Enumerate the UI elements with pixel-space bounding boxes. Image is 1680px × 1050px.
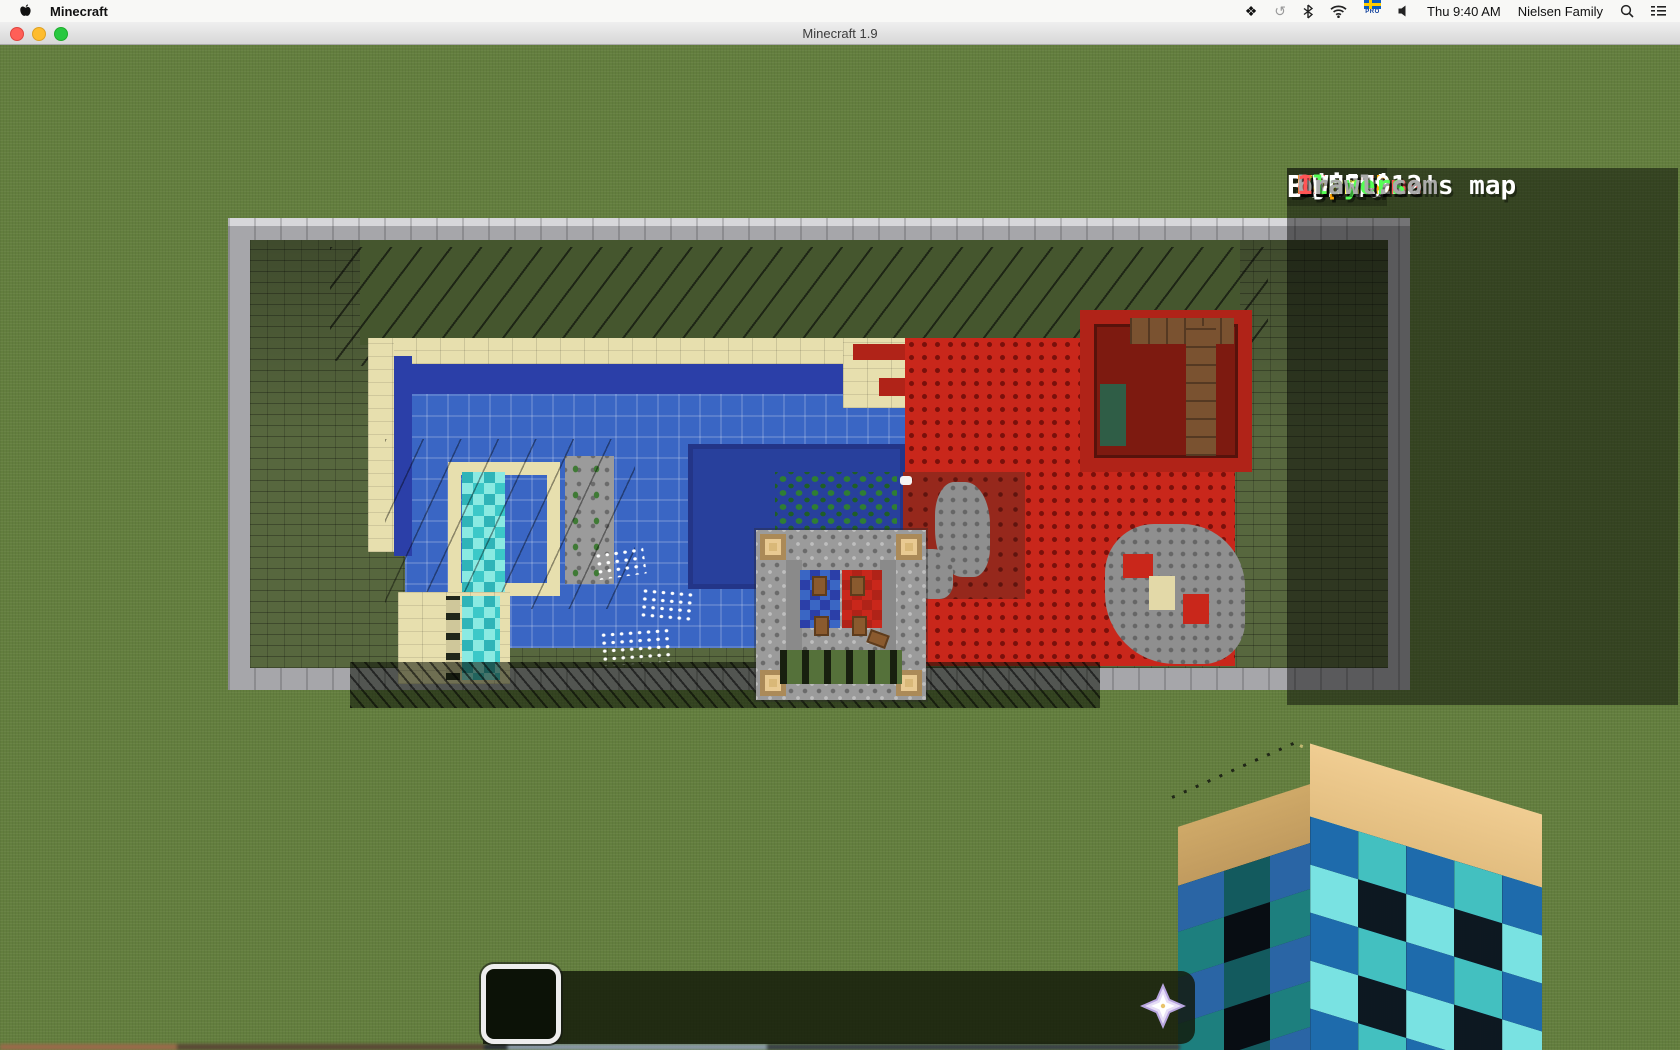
string-lines <box>385 439 635 609</box>
keyboard-layout-label: PRO <box>1365 9 1380 15</box>
armor-stand <box>852 616 867 636</box>
close-button[interactable] <box>10 27 24 41</box>
player-head <box>1160 735 1590 1050</box>
armor-stand <box>814 616 829 636</box>
apple-menu[interactable] <box>18 0 32 22</box>
hotbar <box>483 971 1195 1044</box>
foreground-blur-strip <box>0 1044 1180 1050</box>
volume-icon[interactable] <box>1398 0 1410 22</box>
game-viewport: Build 14Map Name13Kjammi12's map1211Map … <box>0 44 1680 1050</box>
zoom-button[interactable] <box>54 27 68 41</box>
ruin-right <box>1105 524 1245 664</box>
bottom-rail-band <box>350 662 1100 708</box>
notification-center-icon[interactable] <box>1651 0 1666 22</box>
hotbar-selected-slot[interactable] <box>481 964 561 1044</box>
nether-star-icon[interactable] <box>1139 982 1187 1030</box>
scoreboard-row-text: brawl.com <box>1297 171 1438 201</box>
platform-fence <box>780 650 902 684</box>
screen: Minecraft ❖ ↺ PRO T <box>0 0 1680 1050</box>
armor-stand <box>850 576 865 596</box>
window-title: Minecraft 1.9 <box>802 26 877 41</box>
armor-stand <box>812 576 827 596</box>
keyboard-layout-swedish-pro-icon[interactable]: PRO <box>1364 0 1381 22</box>
window-title-bar: Minecraft 1.9 <box>0 22 1680 45</box>
menu-bar: Minecraft ❖ ↺ PRO T <box>0 0 1680 22</box>
snow-speckles-3 <box>599 627 671 667</box>
time-machine-icon[interactable]: ↺ <box>1274 0 1286 22</box>
four-diamonds-icon[interactable]: ❖ <box>1245 0 1258 22</box>
chicken-entity <box>900 476 912 485</box>
menu-user-name[interactable]: Nielsen Family <box>1518 0 1603 22</box>
menu-clock[interactable]: Thu 9:40 AM <box>1427 0 1501 22</box>
spotlight-icon[interactable] <box>1620 0 1634 22</box>
menu-app-name[interactable]: Minecraft <box>50 0 108 22</box>
apple-icon <box>18 3 32 19</box>
red-building <box>1080 310 1252 472</box>
bluetooth-icon[interactable] <box>1303 0 1313 22</box>
scoreboard-row-score: 1 <box>1297 171 1313 201</box>
sandstone-top-bar <box>368 338 908 364</box>
spawn-platform <box>756 530 926 700</box>
snow-speckles-2 <box>639 587 696 622</box>
scoreboard-row: brawl.com1 <box>1287 168 1305 204</box>
minimize-button[interactable] <box>32 27 46 41</box>
blue-wool-top-bar <box>378 364 908 394</box>
wifi-icon[interactable] <box>1330 0 1347 22</box>
scoreboard-panel: Build 14Map Name13Kjammi12's map1211Map … <box>1287 168 1678 705</box>
